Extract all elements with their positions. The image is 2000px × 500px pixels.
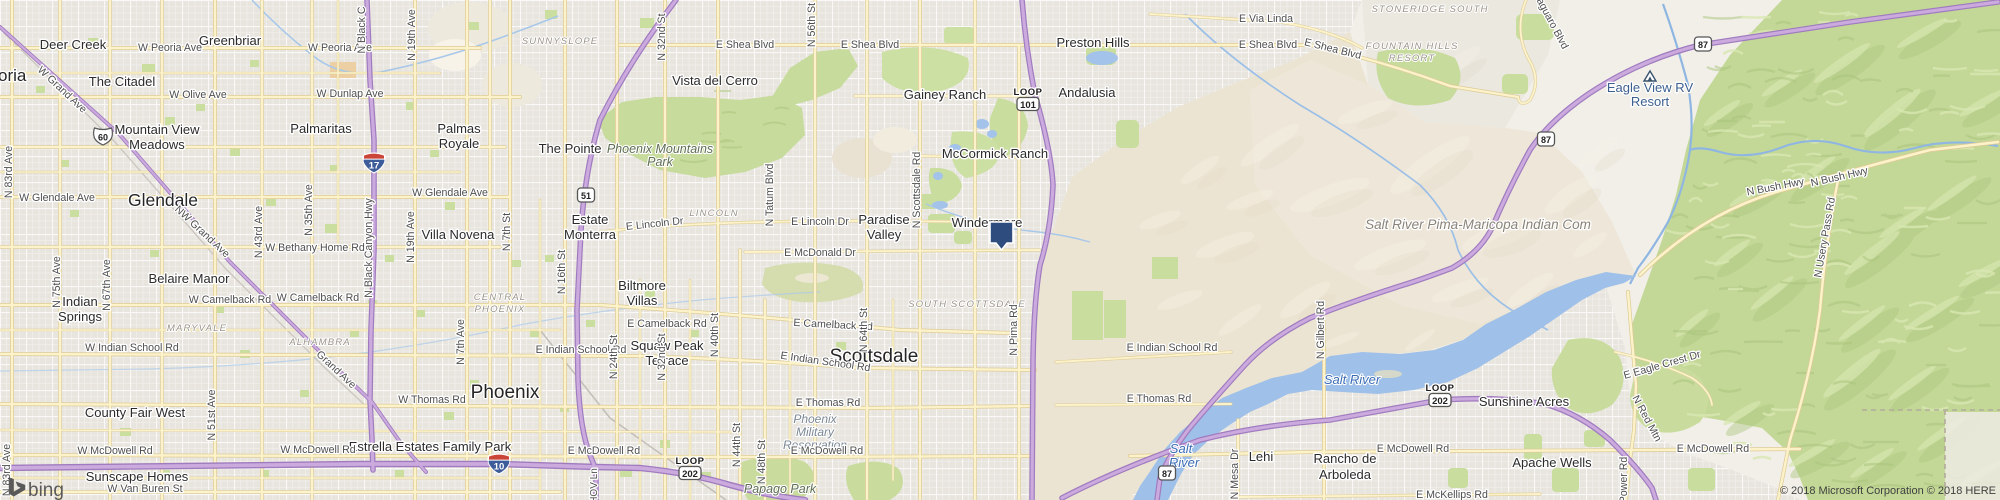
svg-text:The Pointe: The Pointe xyxy=(539,141,602,156)
svg-text:60: 60 xyxy=(98,132,108,142)
svg-text:Military: Military xyxy=(796,425,835,439)
svg-text:Rancho de: Rancho de xyxy=(1314,451,1377,466)
svg-text:Salt River Pima-Maricopa India: Salt River Pima-Maricopa Indian Com xyxy=(1365,217,1591,232)
svg-text:oria: oria xyxy=(0,66,27,85)
svg-text:Greenbriar: Greenbriar xyxy=(199,33,262,48)
svg-text:Meadows: Meadows xyxy=(129,137,185,152)
svg-text:Sunshine Acres: Sunshine Acres xyxy=(1479,394,1570,409)
svg-text:© 2018 Microsoft Corporation ©: © 2018 Microsoft Corporation © 2018 HERE xyxy=(1780,485,1996,497)
svg-text:N 40th St: N 40th St xyxy=(709,313,721,357)
svg-text:FOUNTAIN HILLS: FOUNTAIN HILLS xyxy=(1365,41,1458,52)
svg-text:Royale: Royale xyxy=(439,136,479,151)
svg-text:N 7th Ave: N 7th Ave xyxy=(455,319,467,365)
svg-text:Villa Novena: Villa Novena xyxy=(422,227,496,242)
svg-text:N 19th Ave: N 19th Ave xyxy=(406,9,418,61)
svg-text:N 24th St: N 24th St xyxy=(608,335,620,379)
svg-text:W Van Buren St: W Van Buren St xyxy=(107,483,182,495)
svg-text:N 19th Ave: N 19th Ave xyxy=(405,211,417,263)
svg-text:Preston Hills: Preston Hills xyxy=(1057,35,1130,50)
svg-text:87: 87 xyxy=(1162,469,1172,479)
svg-text:N 43rd Ave: N 43rd Ave xyxy=(253,206,265,258)
svg-text:N 44th St: N 44th St xyxy=(731,423,743,467)
svg-text:E McDowell Rd: E McDowell Rd xyxy=(1677,443,1750,455)
svg-text:N Gilbert Rd: N Gilbert Rd xyxy=(1315,301,1327,359)
svg-text:Biltmore: Biltmore xyxy=(618,278,666,293)
svg-text:Indian: Indian xyxy=(62,294,97,309)
svg-text:Vista del Cerro: Vista del Cerro xyxy=(672,73,758,88)
svg-text:W Glendale Ave: W Glendale Ave xyxy=(19,192,95,204)
svg-text:Mountain View: Mountain View xyxy=(114,122,200,137)
svg-text:W Peoria Ave: W Peoria Ave xyxy=(138,42,202,54)
svg-text:N 7th St: N 7th St xyxy=(501,213,513,251)
svg-text:N Black Canyon Hwy: N Black Canyon Hwy xyxy=(363,198,375,298)
svg-text:Salt River: Salt River xyxy=(1324,372,1381,387)
svg-text:W Indian School Rd: W Indian School Rd xyxy=(85,342,179,354)
svg-text:Gainey Ranch: Gainey Ranch xyxy=(904,87,986,102)
svg-text:CENTRAL: CENTRAL xyxy=(474,292,526,303)
svg-text:202: 202 xyxy=(1432,396,1448,407)
svg-text:Estrella Estates Family Park: Estrella Estates Family Park xyxy=(349,439,512,454)
svg-text:N Tatum Blvd: N Tatum Blvd xyxy=(764,163,776,226)
svg-text:Estate: Estate xyxy=(572,212,609,227)
svg-text:E Camelback Rd: E Camelback Rd xyxy=(627,318,707,330)
svg-text:17: 17 xyxy=(369,161,380,172)
svg-text:N 83rd Ave: N 83rd Ave xyxy=(3,146,15,198)
svg-text:W Thomas Rd: W Thomas Rd xyxy=(398,394,466,406)
svg-text:87: 87 xyxy=(1698,40,1708,50)
svg-text:Belaire Manor: Belaire Manor xyxy=(149,271,231,286)
svg-text:10: 10 xyxy=(494,462,505,473)
svg-text:LOOP: LOOP xyxy=(1426,383,1455,394)
svg-text:Resort: Resort xyxy=(1631,94,1670,109)
svg-text:Lehi: Lehi xyxy=(1249,449,1274,464)
svg-text:Phoenix Mountains: Phoenix Mountains xyxy=(607,142,713,156)
svg-text:LOOP: LOOP xyxy=(1014,87,1043,98)
svg-text:E Via Linda: E Via Linda xyxy=(1239,13,1293,25)
svg-text:N Black C: N Black C xyxy=(356,6,368,53)
svg-text:Monterra: Monterra xyxy=(564,227,617,242)
svg-text:E Shea Blvd: E Shea Blvd xyxy=(1239,39,1297,51)
svg-text:Salt: Salt xyxy=(1170,441,1194,456)
svg-text:Arboleda: Arboleda xyxy=(1319,467,1372,482)
svg-text:W Camelback Rd: W Camelback Rd xyxy=(277,292,360,304)
svg-text:E Thomas Rd: E Thomas Rd xyxy=(796,397,861,409)
svg-text:PHOENIX: PHOENIX xyxy=(475,304,526,315)
svg-text:N Pima Rd: N Pima Rd xyxy=(1008,304,1020,355)
svg-text:STONERIDGE SOUTH: STONERIDGE SOUTH xyxy=(1371,4,1488,15)
svg-text:Power Rd: Power Rd xyxy=(1618,457,1630,500)
svg-text:N 32nd St: N 32nd St xyxy=(656,13,668,60)
svg-text:Andalusia: Andalusia xyxy=(1058,85,1116,100)
svg-text:101: 101 xyxy=(1020,100,1037,111)
svg-text:ALHAMBRA: ALHAMBRA xyxy=(288,337,351,348)
svg-text:E Shea Blvd: E Shea Blvd xyxy=(716,39,774,51)
svg-text:Glendale: Glendale xyxy=(128,190,198,210)
svg-text:Valley: Valley xyxy=(867,227,902,242)
svg-text:W McDowell Rd: W McDowell Rd xyxy=(77,445,152,457)
svg-text:Eagle View RV: Eagle View RV xyxy=(1607,80,1694,95)
svg-text:N 64th St: N 64th St xyxy=(858,308,870,352)
svg-text:E Thomas Rd: E Thomas Rd xyxy=(1127,393,1192,405)
svg-text:bing: bing xyxy=(28,480,64,500)
svg-text:N 16th St: N 16th St xyxy=(556,250,568,294)
svg-text:E McDowell Rd: E McDowell Rd xyxy=(1377,443,1450,455)
svg-text:Phoenix: Phoenix xyxy=(471,382,540,403)
svg-text:202: 202 xyxy=(682,469,698,480)
svg-text:County Fair West: County Fair West xyxy=(85,405,186,420)
svg-text:Deer Creek: Deer Creek xyxy=(40,37,107,52)
svg-text:McCormick Ranch: McCormick Ranch xyxy=(942,146,1048,161)
svg-text:W Olive Ave: W Olive Ave xyxy=(169,89,227,101)
svg-text:N 67th Ave: N 67th Ave xyxy=(101,259,113,311)
svg-text:E Indian School Rd: E Indian School Rd xyxy=(1127,342,1218,354)
svg-text:E McDowell Rd: E McDowell Rd xyxy=(791,445,864,457)
svg-text:N Mesa Dr: N Mesa Dr xyxy=(1229,448,1241,499)
svg-text:E McDonald Dr: E McDonald Dr xyxy=(784,247,856,259)
svg-text:Paradise: Paradise xyxy=(858,212,909,227)
svg-text:Park: Park xyxy=(647,155,673,169)
svg-text:W Bethany Home Rd: W Bethany Home Rd xyxy=(265,242,365,254)
svg-text:RESORT: RESORT xyxy=(1389,53,1435,64)
svg-text:W Dunlap Ave: W Dunlap Ave xyxy=(317,88,384,100)
svg-text:E Lincoln Dr: E Lincoln Dr xyxy=(791,216,849,228)
svg-text:LOOP: LOOP xyxy=(676,456,705,467)
svg-text:Palmas: Palmas xyxy=(437,121,481,136)
svg-text:HOV Ln: HOV Ln xyxy=(589,468,600,500)
svg-text:MARYVALE: MARYVALE xyxy=(167,323,227,334)
svg-text:Papago Park: Papago Park xyxy=(744,482,817,496)
svg-text:W McDowell Rd: W McDowell Rd xyxy=(280,444,355,456)
svg-text:N 35th Ave: N 35th Ave xyxy=(303,184,315,236)
svg-text:N 48th St: N 48th St xyxy=(756,440,768,484)
svg-text:E Shea Blvd: E Shea Blvd xyxy=(841,39,899,51)
svg-text:SUNNYSLOPE: SUNNYSLOPE xyxy=(522,36,599,47)
svg-text:E McKellips Rd: E McKellips Rd xyxy=(1416,489,1488,500)
svg-text:LINCOLN: LINCOLN xyxy=(689,208,738,219)
svg-text:N 75th Ave: N 75th Ave xyxy=(51,256,63,308)
svg-text:W Camelback Rd: W Camelback Rd xyxy=(189,294,272,306)
svg-text:Phoenix: Phoenix xyxy=(793,412,837,426)
svg-text:Apache Wells: Apache Wells xyxy=(1512,455,1592,470)
svg-text:W Glendale Ave: W Glendale Ave xyxy=(412,187,488,199)
svg-text:N Scottsdale Rd: N Scottsdale Rd xyxy=(911,152,923,229)
svg-text:Sunscape Homes: Sunscape Homes xyxy=(86,469,189,484)
svg-text:87: 87 xyxy=(1541,135,1551,145)
svg-text:Villas: Villas xyxy=(627,293,658,308)
svg-text:N 51st Ave: N 51st Ave xyxy=(206,389,218,440)
svg-text:Palmaritas: Palmaritas xyxy=(290,121,352,136)
svg-text:51: 51 xyxy=(581,191,591,201)
svg-text:N 56th St: N 56th St xyxy=(806,3,818,47)
svg-text:The Citadel: The Citadel xyxy=(89,74,156,89)
svg-text:N 32nd St: N 32nd St xyxy=(656,333,668,380)
svg-text:Springs: Springs xyxy=(58,309,103,324)
svg-text:E McDowell Rd: E McDowell Rd xyxy=(568,445,641,457)
